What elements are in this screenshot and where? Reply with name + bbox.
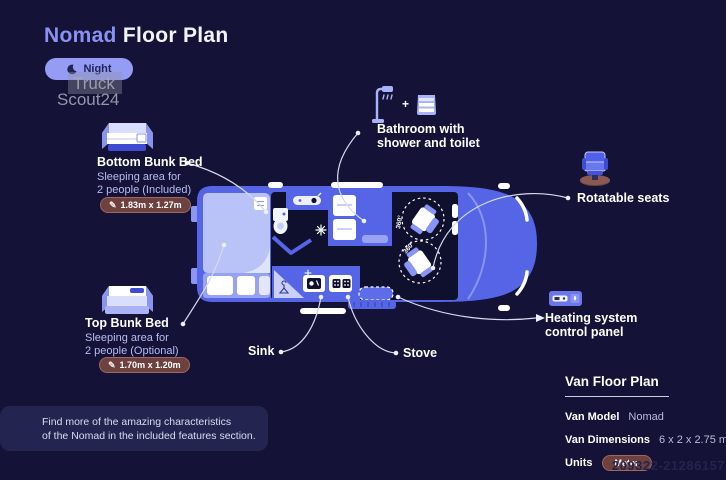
page-title-accent: Nomad: [44, 24, 117, 47]
connector-stove: [348, 297, 396, 353]
bathroom-icons: +: [370, 84, 438, 124]
bathroom-label-line2: shower and toilet: [377, 136, 480, 150]
info-row-label: Van Dimensions: [565, 434, 650, 446]
heating-label-line1: Heating system: [545, 311, 637, 325]
top-bunk-desc-line2: 2 people (Optional): [85, 345, 179, 358]
van-body: [197, 186, 537, 302]
floorplan-toilet: [273, 208, 288, 234]
floorplan-heating-panel: [359, 287, 393, 300]
floorplan-bed: [203, 193, 270, 273]
bottom-bunk-desc: Sleeping area for 2 people (Included): [97, 171, 191, 196]
pencil-icon: ✎: [109, 200, 117, 210]
van-pillar-handle-top: [452, 204, 458, 218]
heating-panel-icon: [549, 291, 582, 306]
top-bunk-desc: Sleeping area for 2 people (Optional): [85, 332, 179, 357]
seat-rotation-label-1: 360°: [394, 214, 404, 229]
connector-heating-arrowhead: [536, 314, 545, 322]
toilet-icon: [415, 93, 438, 116]
bottom-bunk-dimensions: 1.83m x 1.27m: [121, 200, 182, 210]
van-interior-floor: [271, 192, 458, 300]
footer-note-line1: Find more of the amazing characteristics: [42, 415, 258, 429]
top-bunk-dimensions: 1.70m x 1.20m: [120, 360, 181, 370]
connector-sink: [281, 297, 321, 352]
connector-seats: [433, 194, 568, 268]
footer-note: Find more of the amazing characteristics…: [0, 406, 268, 451]
van-taillight-bottom: [191, 268, 199, 284]
shower-icon: [370, 84, 396, 124]
bathroom-label-line1: Bathroom with: [377, 122, 480, 136]
top-bunk-dimensions-badge: ✎ 1.70m x 1.20m: [99, 357, 190, 373]
connector-top-bunk: [183, 245, 224, 324]
connector-dots: [181, 131, 571, 356]
floorplan-sink: [303, 275, 325, 292]
info-row-label: Van Model: [565, 411, 619, 423]
connector-bottom-bunk: [187, 163, 266, 212]
floorplan-drawers: [203, 273, 270, 298]
page-title: Nomad Floor Plan: [44, 24, 229, 48]
bathroom-label: Bathroom with shower and toilet: [377, 122, 480, 150]
van-floor-plan-screen: 360° 360°: [0, 0, 726, 480]
sink-label: Sink: [248, 344, 274, 358]
heating-label-line2: control panel: [545, 325, 637, 339]
info-row-value: 6 x 2 x 2.75 m: [659, 434, 726, 446]
floorplan-seat-driver: [402, 198, 444, 240]
info-panel-divider: [565, 396, 669, 397]
info-row-label: Units: [565, 457, 593, 469]
stove-label: Stove: [403, 346, 437, 360]
floorplan-seat-passenger: [399, 241, 441, 283]
plus-sign: +: [402, 97, 409, 111]
bottom-bunk-title: Bottom Bunk Bed: [97, 155, 203, 169]
top-bunk-bed-icon: [100, 284, 154, 317]
listing-id-watermark: 209322-21286157: [612, 458, 725, 473]
top-bunk-desc-line1: Sleeping area for: [85, 332, 179, 345]
floorplan-shower-curtain: [273, 237, 311, 253]
van-pillar-handle-bottom: [452, 221, 458, 235]
van-taillight-top: [191, 206, 199, 222]
van-rails: [268, 182, 510, 314]
info-row-van-model: Van Model Nomad: [565, 410, 726, 424]
pencil-icon: ✎: [108, 360, 116, 370]
floorplan-wardrobe: [328, 192, 392, 246]
footer-note-line2: of the Nomad in the included features se…: [42, 429, 258, 443]
connector-heating: [398, 297, 536, 320]
info-row-value: Nomad: [628, 411, 663, 423]
heating-label: Heating system control panel: [545, 311, 637, 339]
rotatable-seats-label: Rotatable seats: [577, 191, 669, 205]
van-cab-front: [468, 193, 527, 299]
top-bunk-title: Top Bunk Bed: [85, 316, 169, 330]
page-title-rest: Floor Plan: [123, 24, 229, 47]
connector-bathroom: [338, 133, 364, 221]
bottom-bunk-desc-line2: 2 people (Included): [97, 184, 191, 197]
info-row-van-dimensions: Van Dimensions 6 x 2 x 2.75 m: [565, 433, 726, 447]
bottom-bunk-desc-line1: Sleeping area for: [97, 171, 191, 184]
rotatable-seat-icon: [576, 150, 614, 188]
floorplan-vanity: [286, 192, 328, 210]
floorplan-shower-sparkle: [316, 225, 326, 235]
floorplan-kitchen: [272, 266, 360, 300]
floorplan-stove: [329, 275, 352, 292]
info-panel-title: Van Floor Plan: [565, 374, 726, 389]
seat-rotation-label-2: 360°: [401, 240, 416, 256]
van-floorplan-illustration: 360° 360°: [180, 178, 545, 318]
truckscout24-watermark-line2: Scout24: [57, 92, 119, 108]
floorplan-entry-step: [348, 300, 396, 309]
bottom-bunk-dimensions-badge: ✎ 1.83m x 1.27m: [100, 197, 191, 213]
bottom-bunk-bed-icon: [100, 121, 154, 154]
